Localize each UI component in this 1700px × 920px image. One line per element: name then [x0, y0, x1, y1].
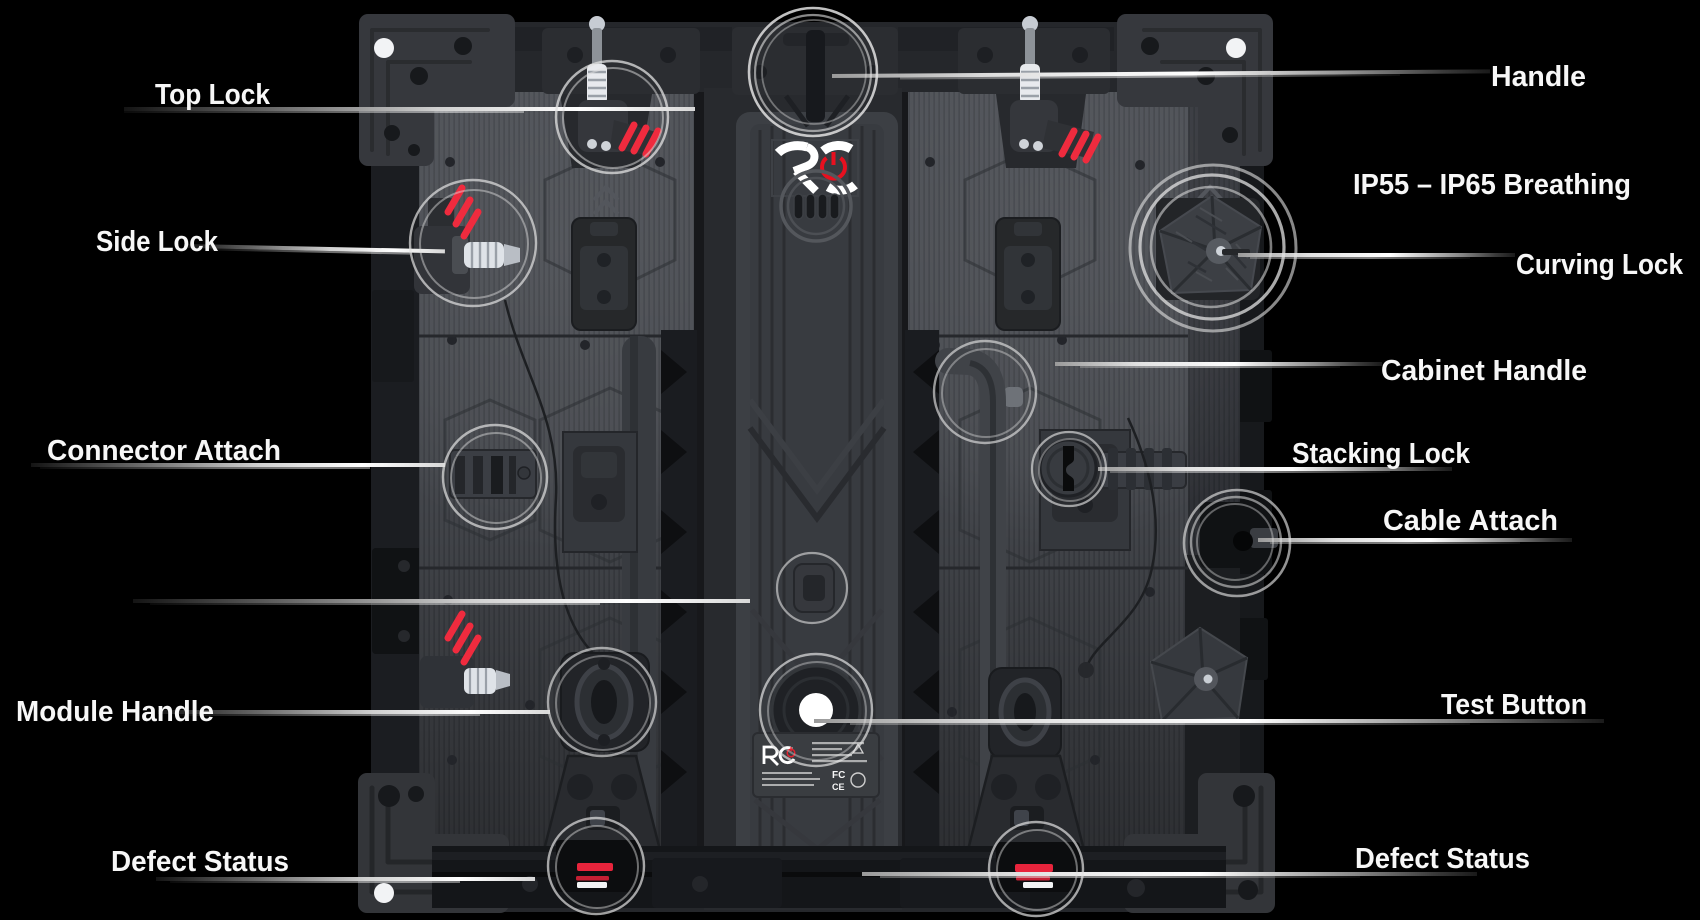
svg-text:Cable Attach: Cable Attach [1383, 505, 1558, 537]
svg-text:Side Lock: Side Lock [96, 226, 219, 258]
svg-text:Stacking Lock: Stacking Lock [1292, 438, 1471, 470]
svg-text:Top Lock: Top Lock [155, 79, 271, 111]
svg-text:Curving Lock: Curving Lock [1516, 249, 1684, 281]
svg-text:IP55 – IP65 Breathing: IP55 – IP65 Breathing [1353, 169, 1631, 201]
svg-text:Module Handle: Module Handle [16, 696, 214, 728]
svg-text:Test Button: Test Button [1441, 689, 1587, 721]
svg-text:Defect Status: Defect Status [111, 846, 289, 878]
svg-text:Handle: Handle [1491, 61, 1586, 93]
svg-text:FC: FC [832, 770, 845, 781]
svg-text:CE: CE [832, 782, 845, 792]
svg-text:Defect Status: Defect Status [1355, 843, 1530, 875]
svg-text:Cabinet Handle: Cabinet Handle [1381, 355, 1587, 387]
svg-text:Connector Attach: Connector Attach [47, 435, 281, 467]
